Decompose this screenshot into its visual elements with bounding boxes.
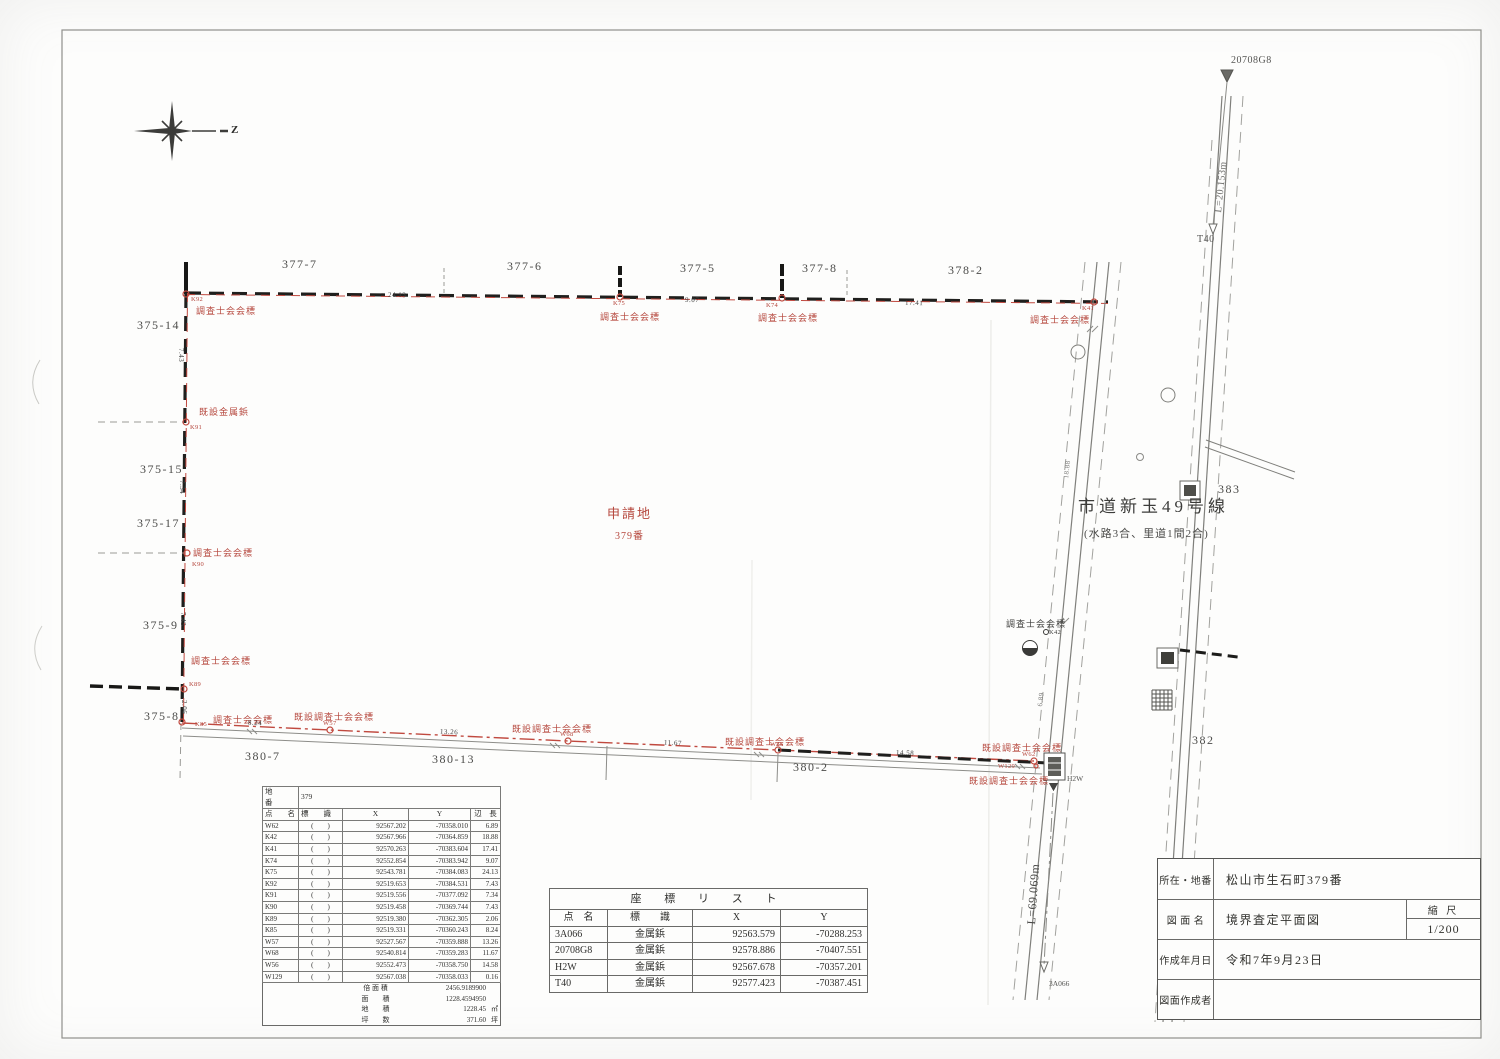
table-row: T40金属鋲92577.423-70387.451	[550, 976, 868, 993]
title-block-row: 所在・地番 松山市生石町379番	[1158, 859, 1480, 899]
scan-arc-artifact	[35, 626, 42, 670]
title-block-row: 図面作成者	[1158, 979, 1480, 1019]
coordinate-list-title: 座 標 リ ス ト	[550, 889, 868, 910]
table-row: K85( )92519.331-70360.2438.24	[263, 925, 501, 937]
title-block-row: 作成年月日 令和7年9月23日	[1158, 939, 1480, 979]
title-block-label: 図 面 名	[1158, 900, 1214, 939]
benchmark-icon	[1023, 641, 1038, 656]
manhole-icon	[1071, 345, 1085, 359]
scale-value: 1/200	[1407, 919, 1480, 939]
title-block-label: 図面作成者	[1158, 980, 1214, 1019]
table-row: W57( )92527.567-70359.88813.26	[263, 936, 501, 948]
table-row: K42( )92567.966-70364.85918.88	[263, 832, 501, 844]
point-coordinate-table: 地 番 379 点 名 標 識 X Y 辺 長 W62( )92567.202-…	[262, 786, 501, 1026]
table-row: K89( )92519.380-70362.3052.06	[263, 913, 501, 925]
col-header-y: Y	[781, 910, 868, 927]
waterway-edge	[182, 728, 1040, 768]
title-block-value	[1214, 980, 1480, 1019]
table-footer-row: 面 積1228.4594950	[263, 994, 501, 1005]
table-row: 20708G8金属鋲92578.886-70407.551	[550, 943, 868, 960]
table-row: K92( )92519.653-70384.5317.43	[263, 878, 501, 890]
col-header-len: 辺 長	[471, 809, 501, 821]
structure-box-icon	[1180, 481, 1200, 500]
table-row: W62( )92567.202-70358.0106.89	[263, 820, 501, 832]
title-block-value: 令和7年9月23日	[1214, 940, 1480, 979]
title-block-label: 所在・地番	[1158, 859, 1214, 899]
col-header-name: 点 名	[550, 910, 608, 927]
table-row: K91( )92519.556-70377.0927.34	[263, 890, 501, 902]
lot-value: 379	[299, 787, 501, 809]
col-header-mark: 標 識	[299, 809, 343, 821]
table-row: W56( )92552.473-70358.75014.58	[263, 959, 501, 971]
point-T40-marker	[1209, 224, 1217, 234]
crosshatch-structure-icon	[1152, 690, 1172, 710]
compass-rose-icon	[134, 101, 228, 161]
col-header-name: 点 名	[263, 809, 299, 821]
point-K42-marker	[1044, 630, 1049, 635]
survey-leg-line	[1213, 82, 1227, 226]
road-shintama-49	[1013, 262, 1121, 1000]
col-header-x: X	[693, 910, 781, 927]
col-header-x: X	[343, 809, 409, 821]
point-20708G8-marker	[1221, 70, 1233, 82]
table-row: W68( )92540.814-70359.28311.67	[263, 948, 501, 960]
boundary-top	[186, 293, 1108, 302]
col-header-mark: 標 識	[608, 910, 693, 927]
small-marker-icon	[1137, 454, 1144, 461]
title-block-label: 作成年月日	[1158, 940, 1214, 979]
scale-box: 縮 尺 1/200	[1406, 900, 1480, 939]
table-footer-row: 坪 数371.60坪	[263, 1015, 501, 1026]
table-row: K75( )92543.781-70384.08324.13	[263, 867, 501, 879]
table-row: 3A066金属鋲92563.579-70288.253	[550, 926, 868, 943]
title-block: 所在・地番 松山市生石町379番 図 面 名 境界査定平面図 縮 尺 1/200…	[1157, 858, 1481, 1020]
lot-label: 地 番	[263, 787, 299, 809]
title-block-value: 松山市生石町379番	[1214, 859, 1480, 899]
table-row: W129( )92567.038-70358.0330.16	[263, 971, 501, 983]
table-footer-row: 地 積1228.45㎡	[263, 1004, 501, 1015]
table-row: K90( )92519.458-70369.7447.43	[263, 901, 501, 913]
table-row: K41( )92570.263-70383.60417.41	[263, 843, 501, 855]
title-block-value: 境界査定平面図	[1214, 900, 1406, 939]
title-block-row: 図 面 名 境界査定平面図 縮 尺 1/200	[1158, 899, 1480, 939]
survey-leg-line	[1044, 793, 1053, 966]
scale-label: 縮 尺	[1407, 900, 1480, 919]
table-row: K74( )92552.854-70383.9429.07	[263, 855, 501, 867]
manhole-icon	[1161, 388, 1175, 402]
h2w-marker-icon	[1044, 753, 1065, 791]
survey-map-sheet: Z 377-7 377-6 377-5 377-8 378-2 375-14 3…	[0, 0, 1500, 1059]
table-row: H2W金属鋲92567.678-70357.201	[550, 959, 868, 976]
table-footer-row: 倍 面 積2456.9189900	[263, 983, 501, 994]
coordinate-list-table: 座 標 リ ス ト 点 名 標 識 X Y 3A066金属鋲92563.579-…	[549, 888, 868, 993]
col-header-y: Y	[409, 809, 471, 821]
scan-arc-artifact	[33, 360, 40, 404]
boundary-point-circles	[179, 291, 1097, 768]
structure-box-icon	[1157, 648, 1178, 668]
